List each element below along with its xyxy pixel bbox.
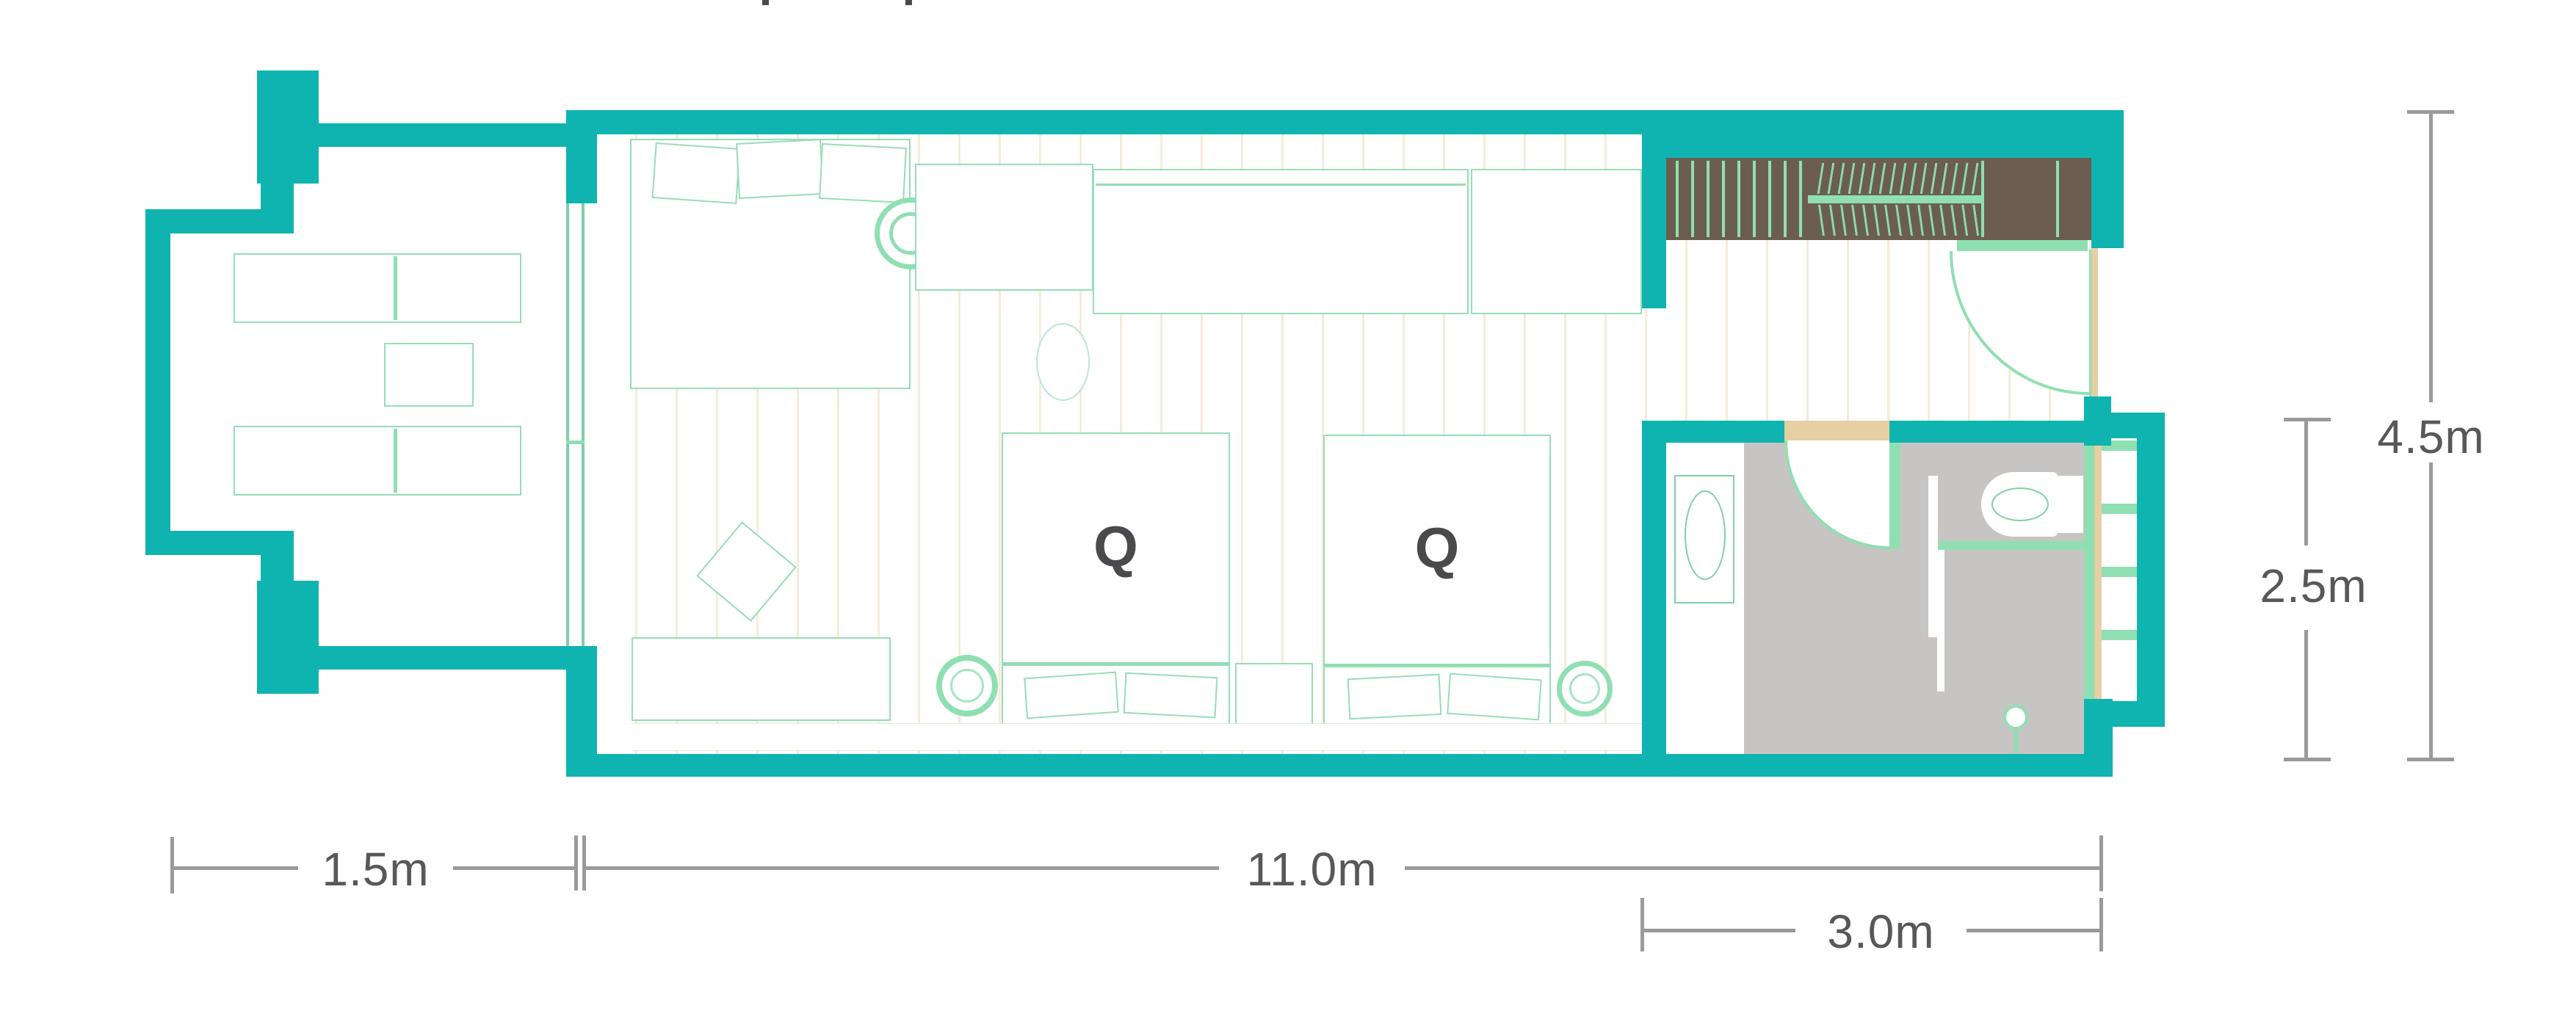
window-mullion: [566, 440, 585, 444]
bathroom-wall-top-left: [1642, 421, 1784, 443]
closet-hangers-lower: [1811, 205, 1981, 236]
balcony-wall-connector-top: [261, 184, 294, 211]
dim-line-bathdepth: [2304, 421, 2308, 545]
bathroom-wall-left: [1642, 421, 1666, 754]
balcony-table: [384, 343, 474, 407]
dim-line-depth: [2429, 114, 2433, 402]
shelf-bar: [2102, 567, 2137, 577]
dim-tick: [2407, 758, 2454, 761]
bathroom-right-wall: [2084, 439, 2094, 699]
nightstand-between-beds: [1235, 663, 1313, 725]
toilet-partition-wall: [1939, 541, 2084, 550]
closet-shelf-slats: [1676, 161, 1808, 237]
nightstand-round-left-inner: [950, 669, 984, 703]
dim-label-balcony: 1.5m: [298, 841, 453, 896]
bathroom-wall-top-right: [1889, 421, 2084, 443]
dim-line-bathroom: [1644, 929, 1795, 932]
shower-head-arm: [2014, 730, 2018, 754]
wall-top: [566, 110, 2124, 134]
balcony-band-top: [319, 123, 566, 147]
closet-hanger-rod: [1808, 195, 1984, 203]
dim-tick: [1640, 898, 1644, 951]
toilet-bowl-outline: [1991, 487, 2049, 521]
window-line-outer: [566, 203, 569, 646]
balcony-wall-bottomleft: [145, 531, 294, 555]
cropped-text-mark: [905, 0, 912, 5]
bench: [632, 637, 891, 721]
dim-label-depth: 4.5m: [2356, 411, 2506, 463]
console-block: [1471, 169, 1642, 314]
bed-2-pillow: [1447, 673, 1542, 721]
entry-door-leaf: [1957, 240, 2088, 251]
balcony-band-bottom: [319, 646, 566, 670]
dim-line-depth: [2429, 463, 2433, 760]
dim-tick: [170, 837, 174, 893]
dim-tick: [582, 835, 586, 891]
bed-1-pillow: [1124, 672, 1218, 719]
entry-floor-sliver: [2091, 248, 2098, 396]
dim-line-bathroom: [1967, 929, 2099, 932]
bed-queen-2: Q: [1323, 435, 1551, 725]
balcony-wall-left: [145, 209, 170, 555]
dim-tick: [2099, 835, 2103, 891]
wall-top-closet-filler: [1666, 134, 2091, 158]
wall-bottom: [566, 754, 2113, 777]
bed-2-pillow: [1347, 674, 1442, 720]
dim-line-room: [586, 866, 1219, 870]
shelf-back-strip: [2094, 438, 2102, 699]
bed-2-label: Q: [1325, 436, 1549, 661]
desk-counter: [1093, 169, 1469, 314]
bed-queen-1: Q: [1002, 432, 1230, 725]
floorplan: Q Q: [0, 0, 2576, 1019]
entry-corner-block: [2084, 396, 2111, 446]
closet-hangers-upper: [1811, 163, 1981, 194]
window-line-inner: [582, 203, 585, 646]
balcony-lounger-upper-divider: [394, 256, 397, 320]
balcony-lounger-lower-divider: [394, 429, 397, 493]
entry-frame-line: [2089, 250, 2091, 396]
dim-line-balcony: [173, 866, 298, 870]
balcony-pillar-bottom: [257, 581, 319, 694]
wall-right-upper: [2091, 134, 2124, 248]
wall-stub-closet-left: [1642, 134, 1666, 308]
closet-divider-line: [2056, 161, 2059, 237]
balcony-lounger-lower: [234, 426, 521, 496]
dim-label-room: 11.0m: [1219, 841, 1405, 896]
dim-line-bathdepth: [2304, 630, 2308, 760]
balcony-pillar-top: [257, 70, 319, 184]
dim-label-bathdepth: 2.5m: [2238, 560, 2389, 612]
desk-counter-edge: [1096, 184, 1466, 186]
stool: [1036, 323, 1090, 401]
sofa-cushion: [819, 143, 907, 203]
shelf-arm-bottom: [2113, 701, 2165, 727]
toilet-tank: [2058, 476, 2083, 533]
shower-head: [2003, 705, 2028, 730]
shower-partition-lower: [1937, 550, 1944, 692]
cabinet-block: [915, 164, 1093, 291]
dim-tick: [574, 835, 578, 891]
shelf-bar: [2102, 504, 2137, 514]
bed-1-pillow: [1024, 672, 1119, 719]
shelf-outer-wall: [2137, 413, 2165, 727]
dim-label-bathroom: 3.0m: [1795, 904, 1967, 959]
balcony-wall-connector-bottom: [261, 555, 294, 583]
window-sill: [569, 203, 582, 646]
dim-line-room: [1405, 866, 2099, 870]
bathroom-door-leaf: [1889, 440, 1900, 549]
bed-1-headboard-line: [1003, 662, 1229, 666]
bed-2-headboard-line: [1325, 664, 1549, 667]
dim-line-balcony: [453, 866, 574, 870]
sink-basin: [1685, 490, 1726, 580]
shelf-bar: [2102, 630, 2137, 640]
sofa-cushion: [736, 139, 824, 199]
dim-tick: [2284, 758, 2331, 761]
sofa-cushion: [651, 142, 740, 204]
bed-1-label: Q: [1003, 434, 1229, 659]
dim-tick: [2099, 898, 2103, 951]
nightstand-round-right-inner: [1569, 673, 1600, 704]
closet-divider-line: [1981, 161, 1984, 237]
window-ledge-platform: [632, 723, 1642, 751]
bathroom-door-threshold: [1784, 421, 1889, 443]
cropped-text-mark: [762, 0, 769, 5]
balcony-lounger-upper: [234, 253, 521, 323]
